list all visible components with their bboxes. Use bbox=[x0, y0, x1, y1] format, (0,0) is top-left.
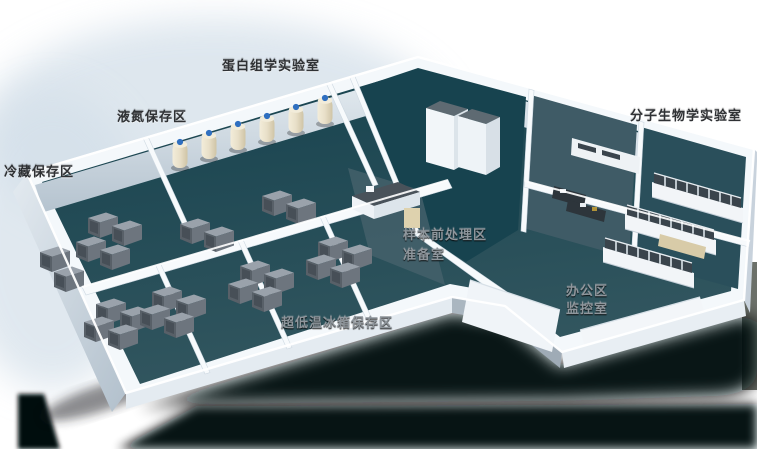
label-cold-storage-area: 冷藏保存区 bbox=[4, 166, 74, 179]
lab-3d-floorplan: 蛋白组学实验室 液氮保存区 冷藏保存区 分子生物学实验室 样本前处理区 准备室 … bbox=[0, 0, 757, 449]
label-molecular-biology-lab: 分子生物学实验室 bbox=[630, 110, 742, 123]
label-office-area: 办公区 bbox=[566, 285, 608, 298]
floorplan-render bbox=[0, 0, 757, 449]
label-ultralow-freezer-area: 超低温冰箱保存区 bbox=[281, 317, 393, 330]
label-liquid-nitrogen-area: 液氮保存区 bbox=[117, 111, 187, 124]
label-preparation-room: 准备室 bbox=[403, 249, 445, 262]
label-proteomics-lab: 蛋白组学实验室 bbox=[222, 60, 320, 73]
label-monitoring-room: 监控室 bbox=[566, 303, 608, 316]
label-sample-pretreatment-area: 样本前处理区 bbox=[403, 229, 487, 242]
